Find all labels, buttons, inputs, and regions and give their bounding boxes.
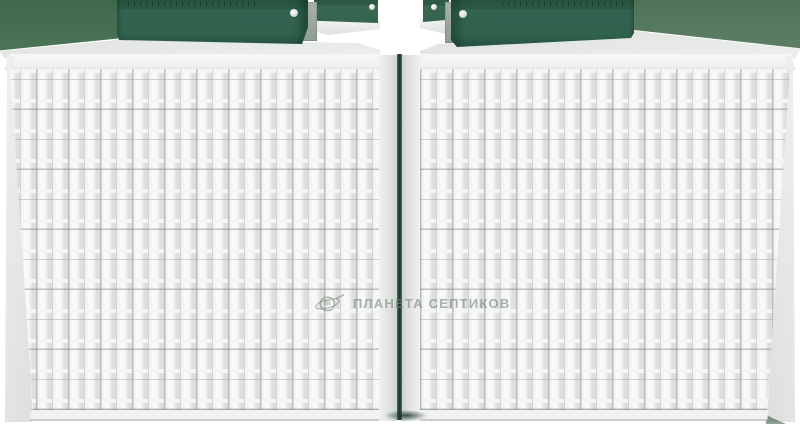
lid-vent-hole [290, 9, 298, 17]
watermark-text: ПЛАНЕТА СЕПТИКОВ [353, 296, 510, 311]
rear-cover-right [626, 0, 800, 53]
rear-cover-left [0, 0, 127, 53]
front-lid-right [451, 0, 634, 48]
tank-ribbed-front [4, 69, 380, 410]
gap-bottom-shadow [384, 410, 428, 421]
front-lid-left [117, 0, 308, 45]
lid-vent-hole [431, 4, 437, 10]
tank-bottom-rim [4, 409, 380, 422]
tank-top-rim [4, 54, 380, 70]
tank-inner-side [402, 55, 420, 421]
tank-bottom-rim [420, 409, 796, 422]
lid-vent-hole [459, 10, 467, 18]
tank-side-face [765, 56, 795, 422]
tank-ribbed-front [420, 69, 796, 410]
planet-ring-icon [314, 290, 346, 316]
septic-tank-product-render: ПЛАНЕТА СЕПТИКОВ [0, 0, 800, 427]
tank-side-shadow [764, 402, 786, 424]
tank-side-face [5, 56, 35, 422]
watermark: ПЛАНЕТА СЕПТИКОВ [314, 285, 504, 321]
rear-lid-left [314, 0, 378, 23]
tank-top-rim [420, 54, 796, 70]
tank-gap-line [397, 54, 402, 420]
lid-vent-hole [369, 4, 375, 10]
tank-inner-side [379, 55, 397, 421]
